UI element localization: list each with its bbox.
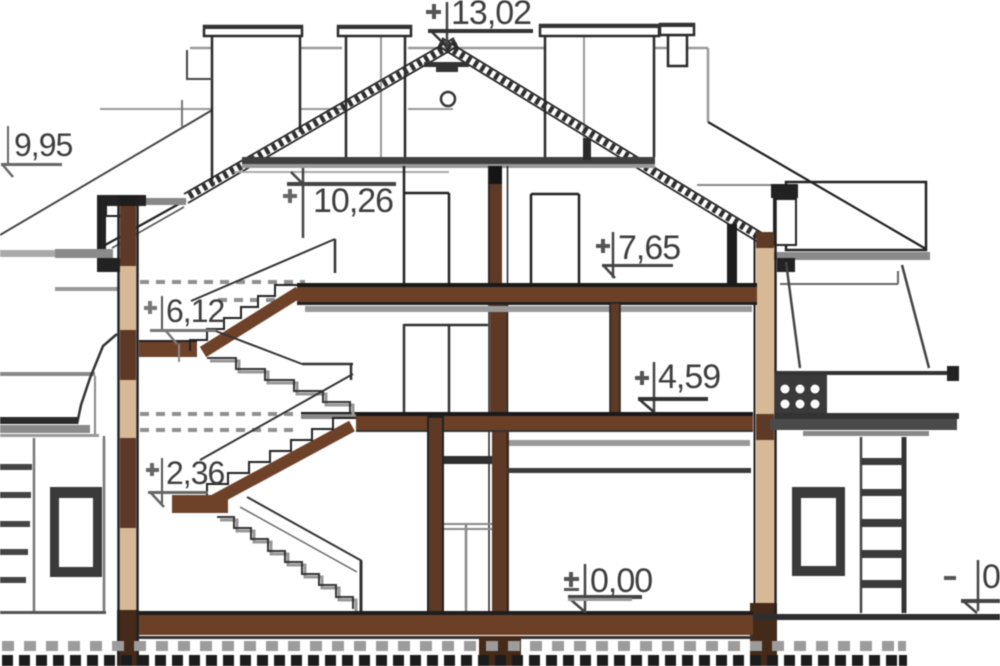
svg-text:9,95: 9,95 <box>14 127 72 163</box>
svg-text:7,65: 7,65 <box>618 229 680 267</box>
svg-text:2,36: 2,36 <box>166 455 224 491</box>
svg-text:10,26: 10,26 <box>313 182 393 220</box>
svg-text:13,02: 13,02 <box>451 0 531 32</box>
svg-text:0: 0 <box>982 558 1000 596</box>
svg-text:4,59: 4,59 <box>658 358 720 396</box>
svg-text:0,00: 0,00 <box>590 562 652 600</box>
svg-text:6,12: 6,12 <box>166 293 224 329</box>
